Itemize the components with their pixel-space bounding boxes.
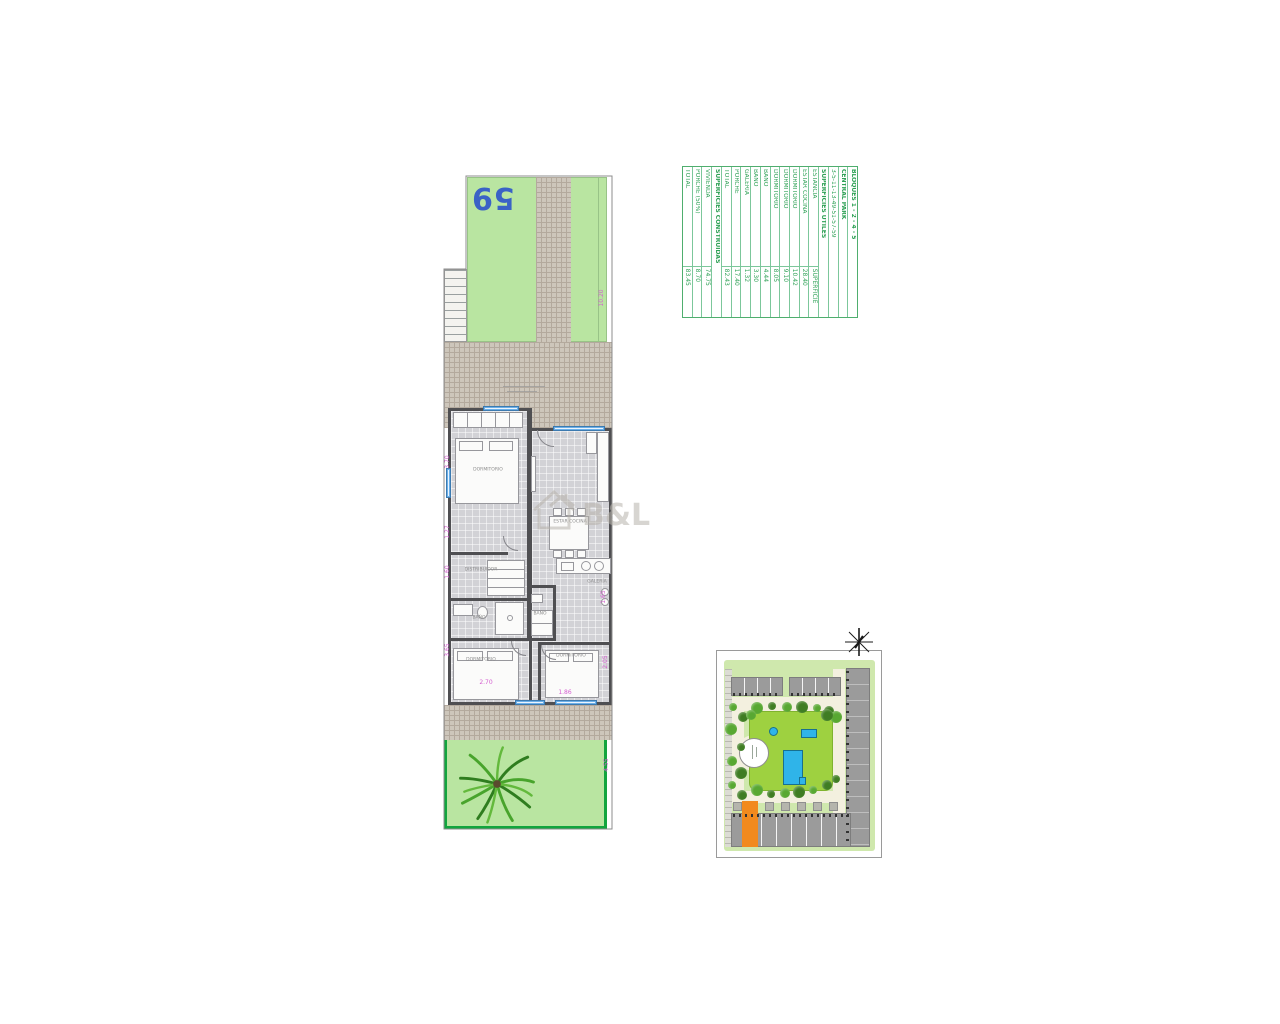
plaza-mark: [756, 747, 757, 757]
unit-porch: [829, 802, 838, 811]
tree-icon: [727, 756, 737, 766]
unit-porch: [765, 802, 774, 811]
row-name: DORMITORIO: [791, 167, 797, 266]
row-name: TOTAL: [684, 167, 690, 266]
row-name: BAÑO: [752, 167, 758, 266]
tree-icon: [832, 775, 840, 783]
unit-porch: [733, 802, 742, 811]
tree-icon: [735, 767, 747, 779]
round-pool: [769, 727, 778, 736]
dimension-label: 2.70: [476, 680, 496, 686]
table-header-name: CENTRAL PARK: [838, 167, 848, 317]
dimension-label: 1.86: [555, 690, 575, 696]
table-row: TOTAL82.43: [721, 167, 731, 317]
tree-icon: [796, 701, 808, 713]
tree-icon: [728, 781, 736, 789]
table-row: ESTAR COCINA28.40: [799, 167, 809, 317]
unit-porch: [813, 802, 822, 811]
row-name: TOTAL: [723, 167, 729, 266]
tree-icon: [767, 790, 775, 798]
small-pool: [801, 729, 817, 738]
dimension-label: 1.27: [445, 522, 451, 542]
tree-icon: [725, 723, 737, 735]
north-star-icon: [845, 628, 873, 656]
table-header-units-text: 3-5-11-13-49-51-57-59: [830, 167, 836, 317]
plaza-mark: [752, 745, 753, 759]
row-name: BAÑO: [762, 167, 768, 266]
room-label: GALERÍA: [587, 580, 606, 585]
site-plan: [716, 650, 882, 858]
table-header-name-text: CENTRAL PARK: [840, 167, 846, 317]
tree-icon: [793, 786, 805, 798]
table-row: TOTAL83.45: [683, 167, 692, 317]
surface-table: BLOQUES 1 - 2 - 4 - 5CENTRAL PARK3-5-11-…: [682, 166, 858, 318]
tree-icon: [822, 780, 832, 790]
row-name: PORCHE: [733, 167, 739, 266]
room-label: DISTRIBUIDOR: [465, 568, 498, 573]
row-name: PORCHE (50%): [694, 167, 700, 266]
row-value: 82.43: [722, 266, 731, 317]
table-header-built: SUPERFICIES CONSTRUIDAS: [711, 167, 721, 317]
row-value: 74.75: [703, 266, 712, 317]
room-label: DORMITORIO: [466, 658, 496, 663]
row-name: VIVIENDA: [704, 167, 710, 266]
table-column-headers: ESTANCIASUPERFICIE: [808, 167, 818, 317]
floorplan-sheet: 59: [0, 0, 1280, 1024]
table-row: DORMITORIO8.05: [770, 167, 780, 317]
row-value: 8.05: [771, 266, 780, 317]
table-header-blocks-text: BLOQUES 1 - 2 - 4 - 5: [850, 167, 856, 317]
table-header-useful-text: SUPERFICIES ÚTILES: [820, 167, 826, 317]
tree-icon: [729, 703, 737, 711]
tree-icon: [821, 709, 833, 721]
watermark-text-svg: B&L: [582, 498, 650, 533]
tree-icon: [809, 786, 817, 794]
unit-porch: [797, 802, 806, 811]
row-name: DORMITORIO: [772, 167, 778, 266]
row-value: 9.10: [780, 266, 789, 317]
unit-porch: [781, 802, 790, 811]
door-ticks: [733, 814, 849, 817]
tree-icon: [782, 702, 792, 712]
table-header-useful: SUPERFICIES ÚTILES: [818, 167, 828, 317]
table-row: PORCHE (50%)8.70: [692, 167, 702, 317]
tree-icon: [746, 710, 756, 720]
highlighted-unit-59: [742, 801, 758, 847]
row-value: 83.45: [683, 266, 692, 317]
table-header-blocks: BLOQUES 1 - 2 - 4 - 5: [847, 167, 857, 317]
room-label: DORMITORIO: [473, 468, 503, 473]
tree-icon: [813, 704, 821, 712]
table-row: BAÑO4.44: [760, 167, 770, 317]
door-ticks: [733, 693, 781, 696]
tree-icon: [780, 788, 790, 798]
dimension-label: 1.60: [445, 562, 451, 582]
row-name: DORMITORIO: [782, 167, 788, 266]
row-name: ESTAR COCINA: [801, 167, 807, 266]
surface-table-rotated: BLOQUES 1 - 2 - 4 - 5CENTRAL PARK3-5-11-…: [682, 166, 858, 318]
row-value: 10.42: [790, 266, 799, 317]
dimension-label: 3.70: [445, 452, 451, 472]
table-row: DORMITORIO10.42: [789, 167, 799, 317]
watermark-house-icon: [534, 492, 574, 528]
table-row: PORCHE17.40: [731, 167, 741, 317]
watermark: B&L: [530, 480, 670, 540]
room-label: BAÑO: [533, 612, 546, 617]
table-header-units: 3-5-11-13-49-51-57-59: [828, 167, 838, 317]
door-ticks: [846, 671, 849, 845]
row-value: 1.32: [741, 266, 750, 317]
row-value: 8.70: [693, 266, 702, 317]
room-label: DORMITORIO: [556, 654, 586, 659]
door-ticks: [791, 693, 839, 696]
row-value: SUPERFICIE: [809, 266, 818, 317]
row-value: 3.30: [751, 266, 760, 317]
room-label: BAÑO: [472, 616, 485, 621]
pool-step: [799, 777, 806, 785]
row-name: GALERÍA: [743, 167, 749, 266]
row-value: 4.44: [761, 266, 770, 317]
row-value: 28.40: [800, 266, 809, 317]
tree-icon: [768, 702, 776, 710]
table-row: GALERÍA1.32: [740, 167, 750, 317]
tree-icon: [737, 790, 747, 800]
plaza-circle: [739, 738, 769, 768]
tree-icon: [751, 784, 763, 796]
table-row: VIVIENDA74.75: [702, 167, 712, 317]
dimension-label: 2.05: [603, 652, 609, 672]
table-header-built-text: SUPERFICIES CONSTRUIDAS: [714, 167, 720, 317]
table-row: BAÑO3.30: [750, 167, 760, 317]
dimension-label: 3.65: [445, 640, 451, 660]
row-value: 17.40: [732, 266, 741, 317]
dimension-label: 1.65: [601, 587, 607, 607]
dimension-label: 4.55: [604, 755, 610, 775]
dimension-label: 10.20: [599, 288, 605, 308]
tree-icon: [737, 743, 745, 751]
row-name: ESTANCIA: [811, 167, 817, 266]
table-row: DORMITORIO9.10: [779, 167, 789, 317]
